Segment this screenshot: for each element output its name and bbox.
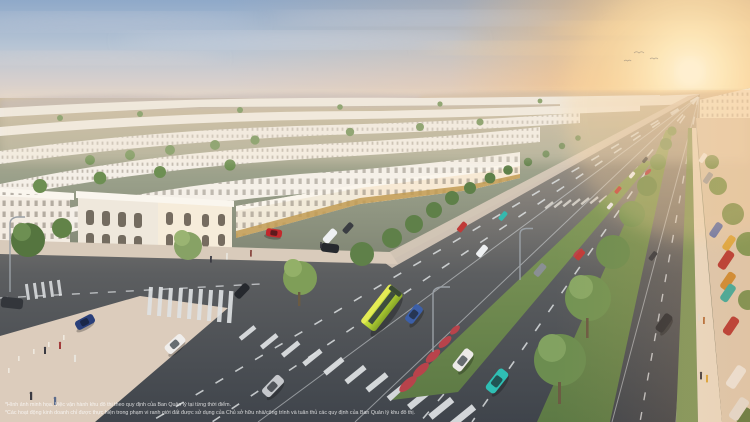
render-image: *Hình ảnh minh họa. Việc vận hành khu đô… [0, 0, 750, 422]
disclaimer-line-1: *Hình ảnh minh họa. Việc vận hành khu đô… [5, 401, 231, 408]
disclaimer-line-2: *Các hoạt động kinh doanh chỉ được thực … [5, 409, 415, 416]
